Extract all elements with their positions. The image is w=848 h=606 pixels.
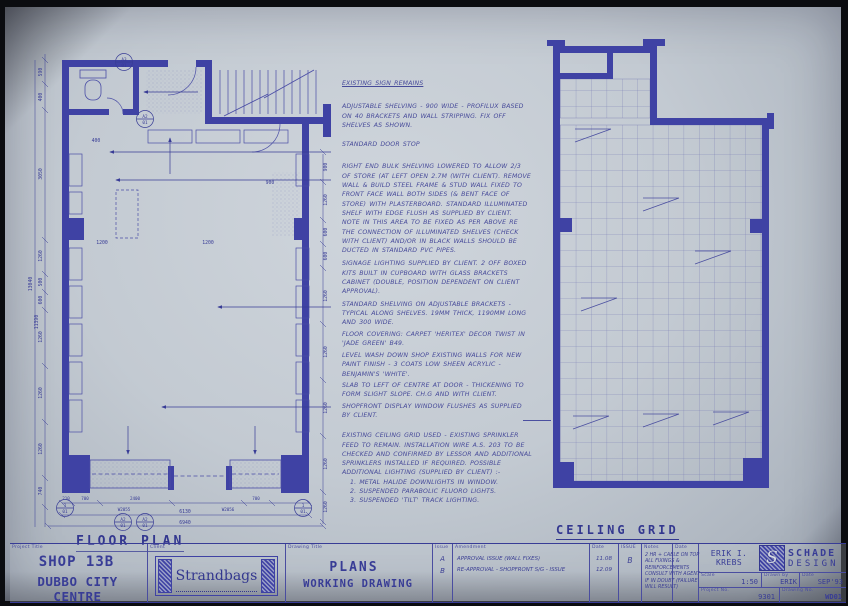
- svg-text:1: 1: [64, 503, 67, 509]
- drawing-no-label: Drawing No.: [782, 588, 814, 593]
- revision-issue: A: [433, 555, 452, 563]
- right-dimension-labels: 900 1260 600 600 1260 1260 1260 1260 126…: [323, 163, 329, 513]
- blueprint-photo: 590 400 3050 1260 500 600 1260 1260 1260…: [0, 0, 848, 606]
- svg-text:590: 590: [38, 68, 44, 77]
- client-logo-box: Strandbags: [155, 556, 278, 596]
- svg-text:900: 900: [323, 163, 329, 172]
- svg-text:400: 400: [38, 93, 44, 102]
- project-title-cell: Project Title SHOP 13B DUBBO CITY CENTRE: [10, 544, 148, 602]
- project-no-value: 9301: [758, 593, 775, 601]
- drawn-value: ERIK: [780, 578, 797, 586]
- amendment-label: Amendment: [455, 545, 486, 550]
- svg-text:1260: 1260: [323, 346, 329, 358]
- spec-note: EXISTING CEILING GRID USED - EXISTING SP…: [342, 431, 532, 477]
- spec-note: ADJUSTABLE SHELVING - 900 WIDE - PROFILU…: [342, 102, 532, 130]
- schade-logo-icon: S: [759, 545, 785, 571]
- ceiling-grid-title: CEILING GRID: [556, 523, 679, 540]
- spec-note: FLOOR COVERING: CARPET 'HERITEX' DECOR T…: [342, 330, 532, 349]
- drawing-no-value: WD01: [825, 593, 842, 601]
- client-label: Client: [150, 545, 165, 550]
- svg-text:740: 740: [38, 487, 44, 496]
- number-row: Project No. 9301 Drawing No. WD01: [699, 587, 846, 602]
- project-title-line2: DUBBO CITY CENTRE: [10, 574, 145, 604]
- drawn-cell: Drawn by ERIK: [762, 572, 800, 587]
- strandbags-crest-icon: [158, 559, 172, 593]
- svg-text:01: 01: [120, 523, 126, 529]
- drawing-title-line1: PLANS: [286, 560, 422, 575]
- svg-text:A2: A2: [142, 114, 148, 120]
- spec-note: STANDARD DOOR STOP: [342, 140, 532, 149]
- strandbags-crest-icon: [261, 559, 275, 593]
- date3-label: Date: [802, 573, 814, 578]
- svg-text:600: 600: [38, 296, 44, 305]
- revision-amendment: RE-APPROVAL - SHOPFRONT S/G - ISSUE: [457, 567, 587, 573]
- svg-text:A3: A3: [121, 57, 127, 63]
- svg-text:1: 1: [302, 503, 305, 509]
- designer-name: ERIK I. KREBS: [699, 549, 759, 567]
- svg-text:1260: 1260: [323, 458, 329, 470]
- title-block-notes: 2 HR + CABLE ON TOP ALL FIXINGS & REINFO…: [645, 553, 700, 592]
- drawing-no-cell: Drawing No. WD01: [780, 587, 846, 602]
- designer-row: ERIK I. KREBS S SCHADE DESIGN: [699, 544, 846, 573]
- spec-note: 1. METAL HALIDE DOWNLIGHTS IN WINDOW.: [350, 478, 532, 487]
- svg-text:1260: 1260: [323, 290, 329, 302]
- svg-text:1260: 1260: [38, 331, 44, 343]
- project-no-label: Project No.: [701, 588, 729, 593]
- svg-text:700: 700: [252, 496, 260, 501]
- client-cell: Client Strandbags: [148, 544, 286, 602]
- spec-note: SHOPFRONT DISPLAY WINDOW FLUSHES AS SUPP…: [342, 402, 532, 421]
- notes-column: Notes 2 HR + CABLE ON TOP ALL FIXINGS & …: [642, 544, 673, 602]
- svg-text:2400: 2400: [130, 496, 141, 501]
- floor-plan-drawing: 590 400 3050 1260 500 600 1260 1260 1260…: [28, 22, 332, 538]
- spec-note: SIGNAGE LIGHTING SUPPLIED BY CLIENT. 2 O…: [342, 259, 532, 296]
- issue-label: Issue: [435, 545, 448, 550]
- svg-text:600: 600: [323, 252, 329, 261]
- svg-text:6130: 6130: [179, 509, 191, 515]
- scale-value: 1:50: [741, 578, 758, 586]
- svg-text:500: 500: [38, 278, 44, 287]
- issue-current: B: [619, 556, 641, 565]
- svg-text:01: 01: [121, 63, 127, 69]
- svg-text:3050: 3050: [38, 168, 44, 180]
- svg-text:6940: 6940: [179, 520, 191, 526]
- issue2-label: ISSUE: [621, 545, 636, 550]
- revision-amendment: APPROVAL ISSUE (WALL FIXES): [457, 556, 587, 562]
- spec-note: LEVEL WASH DOWN SHOP EXISTING WALLS FOR …: [342, 351, 532, 379]
- svg-text:01: 01: [62, 509, 68, 515]
- reference-bubble-labels: A301 A201 101 101 A201 A201: [62, 57, 306, 529]
- svg-text:W2055: W2055: [118, 507, 131, 512]
- scale-row: Scale 1:50 Drawn by ERIK Date SEP'93: [699, 572, 846, 588]
- project-title-label: Project Title: [12, 545, 43, 550]
- studio-line2: DESIGN: [788, 559, 846, 569]
- drawing-title-cell: Drawing Title PLANS WORKING DRAWING: [286, 544, 433, 602]
- spec-note: SLAB TO LEFT OF CENTRE AT DOOR - THICKEN…: [342, 381, 532, 400]
- svg-text:900: 900: [266, 180, 275, 186]
- floor-plan-walls: [62, 60, 331, 493]
- reference-bubbles: [57, 54, 312, 531]
- svg-text:A2: A2: [120, 517, 126, 523]
- scale-cell: Scale 1:50: [699, 572, 762, 587]
- revision-date: 11.08: [590, 556, 618, 562]
- ceiling-grid-drawing: [545, 26, 785, 531]
- svg-text:1260: 1260: [323, 194, 329, 206]
- svg-text:700: 700: [81, 496, 89, 501]
- drawing-sheet: 590 400 3050 1260 500 600 1260 1260 1260…: [5, 7, 841, 601]
- title-block: Project Title SHOP 13B DUBBO CITY CENTRE…: [10, 543, 846, 603]
- svg-text:1260: 1260: [323, 402, 329, 414]
- issue-column: Issue A B: [433, 544, 453, 602]
- interior-dimension-labels: 400 1200 1200 900: [92, 138, 275, 246]
- spec-note: RIGHT END BULK SHELVING LOWERED TO ALLOW…: [342, 162, 532, 255]
- spec-note: EXISTING SIGN REMAINS: [342, 79, 532, 88]
- svg-text:01: 01: [142, 120, 148, 126]
- svg-text:13040: 13040: [28, 277, 34, 292]
- svg-text:W2056: W2056: [222, 507, 235, 512]
- svg-text:1260: 1260: [38, 250, 44, 262]
- project-title-line1: SHOP 13B: [10, 554, 143, 570]
- spec-note: 3. SUSPENDED 'TILT' TRACK LIGHTING.: [350, 496, 532, 505]
- revision-issue: B: [433, 567, 452, 575]
- revision-date-column: Date 11.08 12.09: [590, 544, 619, 602]
- project-no-cell: Project No. 9301: [699, 587, 780, 602]
- svg-text:600: 600: [323, 228, 329, 237]
- studio-name: SCHADE DESIGN: [788, 548, 846, 569]
- spec-note: 2. SUSPENDED PARABOLIC FLUORO LIGHTS.: [350, 487, 532, 496]
- revision-date: 12.09: [590, 567, 618, 573]
- svg-text:A2: A2: [142, 517, 148, 523]
- left-dimension-labels: 590 400 3050 1260 500 600 1260 1260 1260…: [28, 68, 44, 496]
- drawing-title-line2: WORKING DRAWING: [286, 578, 430, 590]
- svg-text:1200: 1200: [96, 240, 108, 246]
- date3-cell: Date SEP'93: [800, 572, 846, 587]
- wc-fixture: [80, 70, 106, 100]
- date2-label: Date: [675, 545, 687, 550]
- svg-text:1200: 1200: [202, 240, 214, 246]
- notes-label: Notes: [644, 545, 659, 550]
- svg-text:01: 01: [300, 509, 306, 515]
- svg-text:11390: 11390: [34, 315, 40, 330]
- client-name: Strandbags: [176, 560, 258, 592]
- schade-monogram: S: [760, 546, 784, 570]
- svg-text:400: 400: [92, 138, 101, 144]
- bottom-dimension-labels: 210 700 2400 700 W2055 W2056 6130 6940: [62, 496, 260, 526]
- amendment-column: Amendment APPROVAL ISSUE (WALL FIXES) RE…: [453, 544, 590, 602]
- svg-text:1260: 1260: [38, 387, 44, 399]
- scale-label: Scale: [701, 573, 715, 578]
- spec-notes: EXISTING SIGN REMAINS ADJUSTABLE SHELVIN…: [342, 79, 532, 506]
- svg-text:01: 01: [142, 523, 148, 529]
- svg-text:1260: 1260: [323, 501, 329, 513]
- issue-current-column: ISSUE B: [619, 544, 642, 602]
- svg-text:1260: 1260: [38, 443, 44, 455]
- stair: [220, 70, 316, 116]
- designer-block: ERIK I. KREBS S SCHADE DESIGN Scale 1:50…: [699, 544, 846, 602]
- studio-line1: SCHADE: [788, 548, 846, 559]
- date-label: Date: [592, 545, 604, 550]
- drawing-title-label: Drawing Title: [288, 545, 322, 550]
- stipple-texture: [90, 70, 300, 488]
- spec-note: STANDARD SHELVING ON ADJUSTABLE BRACKETS…: [342, 300, 532, 328]
- date3-value: SEP'93: [818, 578, 843, 586]
